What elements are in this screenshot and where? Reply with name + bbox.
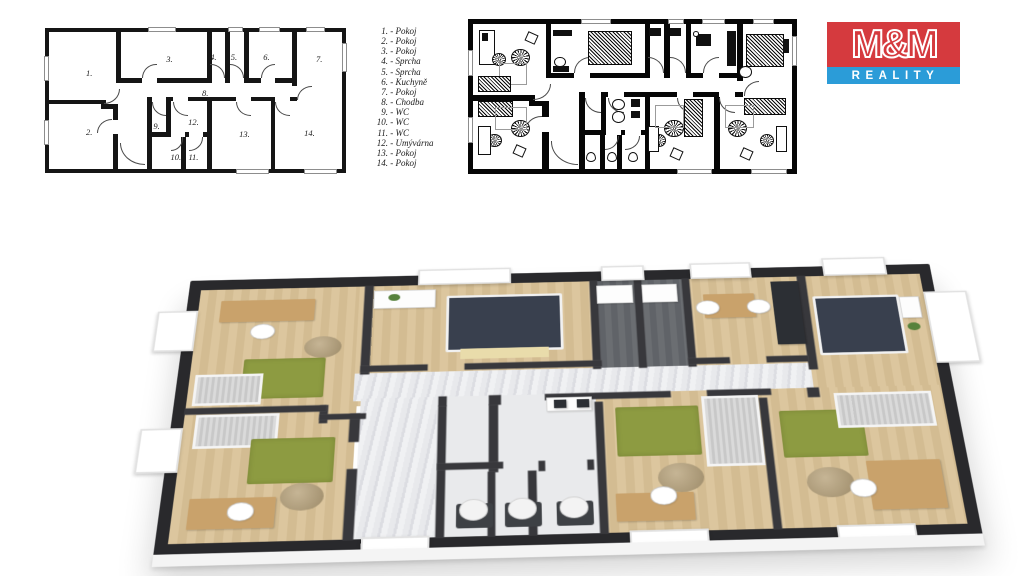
legend-row: 8. - Chodba — [372, 97, 434, 107]
room-label-9: 9. — [153, 121, 159, 131]
room-label-2: 2. — [86, 127, 92, 137]
furniture-glyph — [612, 111, 625, 123]
window-marker — [342, 43, 347, 71]
floorplan-furnished — [468, 19, 797, 174]
room-label-3: 3. — [166, 54, 172, 64]
window-marker — [259, 27, 280, 32]
furniture-glyph — [746, 34, 784, 67]
wall — [290, 97, 297, 102]
wall — [116, 32, 121, 83]
furniture-glyph — [513, 144, 527, 158]
room-label-14: 14. — [304, 128, 315, 138]
bed — [701, 395, 765, 466]
door-swing-arc — [230, 64, 245, 79]
wall — [292, 32, 297, 86]
window — [629, 529, 710, 549]
room-label-10: 10. — [171, 152, 182, 162]
door-swing-arc — [275, 102, 290, 116]
wall — [546, 73, 574, 78]
door-swing-arc — [744, 81, 760, 96]
furniture-glyph — [760, 134, 774, 147]
furniture-glyph — [648, 126, 659, 152]
wall — [207, 101, 212, 169]
room-label-13: 13. — [239, 129, 250, 139]
sink — [577, 399, 589, 407]
door-swing-arc — [120, 143, 145, 165]
desk — [219, 299, 316, 322]
furniture-glyph — [588, 31, 633, 64]
room-label-11: 11. — [188, 152, 198, 162]
bench — [460, 346, 549, 359]
wall — [101, 104, 119, 109]
wall — [244, 32, 249, 83]
wall — [579, 92, 584, 97]
door-swing-arc — [261, 64, 276, 79]
furniture-glyph — [655, 105, 684, 128]
legend-row: 6. - Kuchyně — [372, 77, 434, 87]
wall — [275, 78, 291, 83]
wall — [244, 78, 260, 83]
furniture-glyph — [478, 126, 491, 155]
door-swing-arc — [173, 102, 188, 116]
listing-floorplan-sheet: 1. 2. 3. 4. 5. 6. 7. 8. 9. 10. 11. 12. 1… — [0, 0, 1024, 576]
furniture-glyph — [739, 66, 752, 78]
wall — [538, 461, 545, 470]
door-swing-arc — [551, 141, 578, 164]
wall — [147, 97, 152, 102]
bed — [445, 293, 564, 352]
furniture-glyph — [631, 111, 641, 118]
wall — [203, 132, 207, 137]
house-3d-model — [153, 264, 983, 557]
window — [134, 428, 183, 474]
legend-row: 12. - Umývárna — [372, 138, 434, 148]
wall — [271, 101, 276, 169]
window — [600, 265, 644, 281]
door-swing-arc — [210, 64, 225, 79]
room-label-1: 1. — [86, 68, 92, 78]
wall — [766, 355, 808, 361]
wall — [319, 413, 365, 420]
wall — [688, 357, 729, 363]
furniture-glyph — [607, 152, 617, 162]
wall — [719, 73, 737, 78]
furniture-glyph — [649, 28, 660, 35]
wall — [542, 132, 548, 169]
window — [360, 536, 429, 558]
furniture-glyph — [553, 66, 569, 72]
furniture-glyph — [739, 147, 753, 161]
furniture-glyph — [631, 99, 641, 106]
door-swing-arc — [703, 57, 719, 73]
window-marker — [751, 169, 786, 174]
wall — [473, 95, 532, 100]
door-swing-arc — [533, 84, 551, 100]
furniture-glyph — [524, 31, 538, 45]
door-swing-arc — [104, 89, 120, 104]
room-label-7: 7. — [316, 54, 322, 64]
legend-row: 13. - Pokoj — [372, 148, 434, 158]
wall — [166, 97, 173, 102]
brand-m-and-m: M&M — [827, 22, 960, 67]
furniture-glyph — [586, 152, 596, 162]
wall — [490, 396, 501, 405]
furniture-glyph — [776, 126, 787, 152]
wall — [664, 24, 669, 78]
furniture-glyph — [553, 30, 572, 36]
nightstand — [899, 297, 923, 318]
furniture-glyph — [628, 152, 638, 162]
wall — [590, 73, 648, 78]
legend-row: 7. - Pokoj — [372, 87, 434, 97]
furniture-glyph — [495, 107, 527, 130]
legend-row: 11. - WC — [372, 128, 434, 138]
door-swing-arc — [625, 136, 640, 150]
window-marker — [304, 169, 337, 174]
door-swing-arc — [152, 102, 167, 116]
furniture-glyph — [612, 99, 625, 111]
furniture-glyph — [684, 99, 703, 137]
rug — [615, 406, 703, 457]
chair — [650, 487, 676, 504]
window-marker — [753, 19, 774, 24]
rug — [246, 437, 335, 484]
furniture-glyph — [725, 105, 754, 128]
window-marker — [306, 27, 325, 32]
window-marker — [236, 169, 269, 174]
wall — [546, 24, 551, 78]
wall — [714, 97, 719, 169]
wall — [686, 24, 691, 78]
wall — [735, 92, 743, 97]
wall — [624, 92, 677, 97]
furniture-glyph — [670, 28, 681, 35]
legend-row: 10. - WC — [372, 117, 434, 127]
furniture-glyph — [696, 34, 710, 46]
legend-row: 14. - Pokoj — [372, 158, 434, 168]
wall — [185, 132, 189, 137]
wall — [686, 73, 704, 78]
legend-row: 2. - Pokoj — [372, 36, 434, 46]
desk — [866, 459, 948, 509]
window-marker — [468, 50, 473, 77]
bed — [192, 374, 264, 407]
window-marker — [677, 169, 712, 174]
wall — [49, 100, 103, 105]
room-label-5: 5. — [231, 52, 237, 62]
legend-row: 4. - Sprcha — [372, 56, 434, 66]
window — [689, 262, 751, 279]
window-marker — [468, 117, 473, 144]
legend-row: 9. - WC — [372, 107, 434, 117]
window-marker — [148, 27, 176, 32]
wall — [621, 130, 625, 135]
window-marker — [581, 19, 611, 24]
window-marker — [228, 27, 243, 32]
door-swing-arc — [97, 119, 112, 133]
sink — [554, 400, 566, 408]
door-swing-arc — [142, 64, 157, 79]
window — [821, 257, 888, 276]
wall — [601, 92, 608, 97]
wall — [641, 130, 645, 135]
legend-row: 1. - Pokoj — [372, 26, 434, 36]
bed — [833, 391, 937, 428]
furniture-glyph — [482, 33, 488, 42]
door-swing-arc — [648, 57, 664, 73]
furniture-glyph — [783, 39, 789, 54]
furniture-glyph — [669, 147, 683, 161]
window-marker — [44, 56, 49, 81]
room-label-6: 6. — [263, 52, 269, 62]
window-marker — [702, 19, 725, 24]
room-legend: 1. - Pokoj 2. - Pokoj 3. - Pokoj 4. - Sp… — [372, 26, 434, 168]
window — [836, 524, 919, 544]
window — [418, 267, 512, 285]
wall — [693, 92, 719, 97]
brand-reality: REALITY — [827, 67, 960, 84]
wall — [116, 78, 142, 83]
legend-row: 5. - Sprcha — [372, 67, 434, 77]
wall — [147, 132, 172, 137]
floorplan-3d-render — [150, 196, 1020, 576]
furniture-glyph — [727, 31, 737, 66]
plant — [388, 294, 400, 301]
mm-reality-logo: M&M REALITY — [827, 22, 960, 84]
door-swing-arc — [297, 86, 312, 100]
wall — [157, 78, 211, 83]
window-marker — [668, 19, 684, 24]
legend-row: 3. - Pokoj — [372, 46, 434, 56]
furniture-glyph — [478, 76, 511, 92]
wall — [113, 134, 119, 169]
shower — [596, 285, 633, 304]
wall — [588, 460, 594, 469]
wall — [807, 388, 819, 396]
window-marker — [792, 36, 797, 66]
wall — [188, 97, 237, 102]
dresser — [373, 289, 435, 309]
door-swing-arc — [236, 102, 251, 116]
wall — [600, 135, 605, 169]
wall — [529, 101, 548, 106]
room-label-12: 12. — [188, 117, 199, 127]
window — [152, 311, 198, 352]
shower — [641, 284, 678, 303]
wall — [251, 97, 275, 102]
floorplan-schematic: 1. 2. 3. 4. 5. 6. 7. 8. 9. 10. 11. 12. 1… — [45, 28, 346, 173]
window-marker — [44, 120, 49, 145]
wall — [439, 397, 447, 405]
door-swing-arc — [585, 98, 601, 113]
room-floor — [353, 397, 440, 540]
door-swing-arc — [189, 137, 203, 150]
bed — [812, 295, 909, 356]
door-swing-arc — [670, 57, 686, 73]
